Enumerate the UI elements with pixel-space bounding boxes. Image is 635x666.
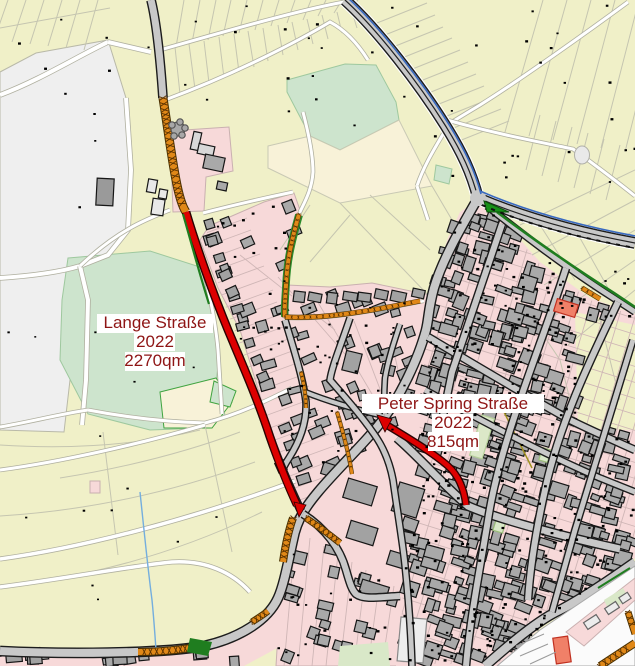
svg-text:2022: 2022 [434,413,472,432]
svg-text:Lange Straße: Lange Straße [103,313,206,332]
svg-text:2022: 2022 [136,332,174,351]
svg-text:Peter Spring Straße: Peter Spring Straße [378,394,528,413]
svg-text:2270qm: 2270qm [124,351,185,370]
svg-text:815qm: 815qm [427,432,479,451]
